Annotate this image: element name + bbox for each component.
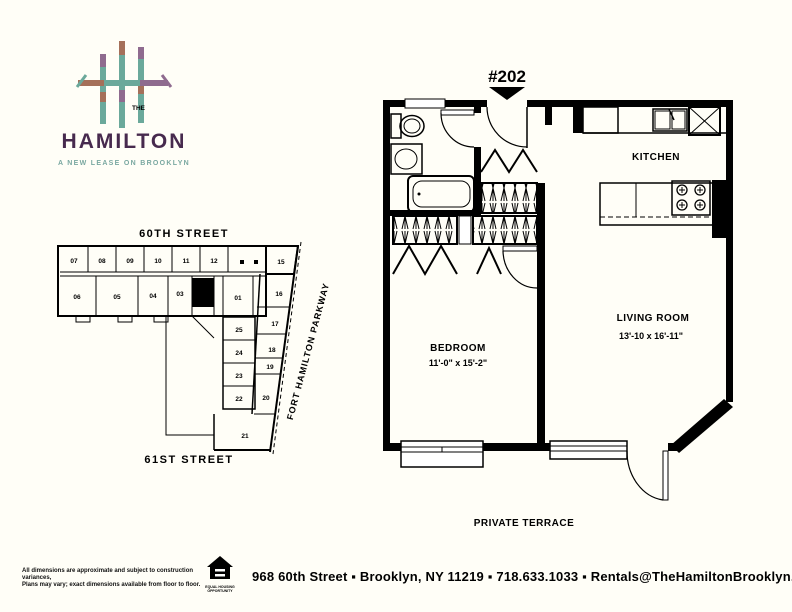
logo-the-text: THE (132, 105, 146, 112)
site-plan-unit-label-09: 09 (126, 258, 134, 265)
site-plan-unit-label-20: 20 (262, 395, 270, 402)
logo-title: HAMILTON (56, 130, 192, 154)
equal-housing-house-icon (207, 556, 233, 580)
bedroom-closet-left-bifold-door (393, 246, 457, 274)
street-label-fort-hamilton-parkway: FORT HAMILTON PARKWAY (285, 282, 331, 421)
kitchen-sink-icon (653, 109, 687, 131)
equal-housing-logo: EQUAL HOUSING OPPORTUNITY (203, 556, 237, 593)
site-plan-unit-label-07: 07 (70, 258, 78, 265)
bedroom-door (503, 251, 537, 288)
site-plan-unit-label-03: 03 (176, 291, 184, 298)
bedroom-closet-left (393, 216, 457, 244)
logo-tagline: A NEW LEASE ON BROOKLYN (56, 160, 192, 167)
unit-callout-label: #202 (488, 67, 526, 86)
site-plan-unit-label-05: 05 (113, 294, 121, 301)
footer-address: 968 60th Street ▪ Brooklyn, NY 11219 ▪ 7… (252, 569, 792, 584)
site-plan-unit-label-11: 11 (183, 258, 190, 265)
bathroom (391, 110, 474, 212)
bedroom: BEDROOM 11'-0" x 15'-2" (401, 246, 537, 467)
site-plan-unit-label-08: 08 (98, 258, 106, 265)
site-plan-unit-label-01: 01 (234, 295, 242, 302)
entry (487, 107, 527, 148)
site-plan-unit-label-04: 04 (149, 293, 157, 300)
kitchen-label: KITCHEN (632, 152, 680, 163)
disclaimer-line-1: All dimensions are approximate and subje… (22, 568, 212, 582)
hamilton-logo: THE HAMILTON A NEW LEASE ON BROOKLYN (56, 32, 192, 167)
bedroom-dimensions: 11'-0" x 15'-2" (429, 358, 487, 368)
disclaimer-line-2: Plans may vary; exact dimensions availab… (22, 582, 212, 589)
walls (383, 99, 733, 453)
refrigerator-icon (689, 107, 720, 135)
living-room-label: LIVING ROOM (617, 313, 690, 324)
bathroom-door (441, 113, 474, 147)
site-plan-unit-label-23: 23 (235, 373, 243, 380)
private-terrace-label: PRIVATE TERRACE (474, 518, 574, 529)
kitchen: KITCHEN (583, 107, 726, 225)
floor-plan-202: #202 (378, 62, 738, 532)
living-room-dimensions: 13'-10 x 16'-11" (619, 331, 683, 341)
site-plan-unit-label-10: 10 (154, 258, 162, 265)
site-plan-unit-label-16: 16 (275, 291, 283, 298)
living-room: LIVING ROOM 13'-10 x 16'-11" (550, 313, 689, 500)
site-key-plan: 60TH STREET 61ST STREET FORT HAMILTON PA… (48, 222, 338, 472)
kitchen-counter (600, 183, 713, 225)
bedroom-label: BEDROOM (430, 343, 486, 354)
terrace-door (627, 451, 668, 500)
site-plan-unit-02-highlighted (192, 278, 214, 307)
site-plan-unit-label-21: 21 (241, 433, 249, 440)
unit-callout: #202 (488, 67, 526, 100)
living-room-window (550, 441, 627, 459)
bedroom-closet-right-bifold-door (477, 248, 501, 274)
bedroom-window (401, 441, 483, 467)
hamilton-logo-mark: THE (74, 32, 174, 128)
site-plan-unit-label-25: 25 (235, 327, 243, 334)
stove-icon (672, 181, 710, 215)
site-plan-unit-label-15: 15 (277, 259, 285, 266)
site-plan-unit-label-24: 24 (235, 350, 243, 357)
site-plan-unit-label-19: 19 (266, 364, 274, 371)
site-plan-unit-label-12: 12 (210, 258, 218, 265)
site-plan-unit-label-06: 06 (73, 294, 81, 301)
site-plan-unit-label-22: 22 (235, 396, 243, 403)
unit-callout-arrow-icon (489, 87, 525, 100)
entry-closet-bifold-door (481, 150, 537, 172)
site-plan-unit-label-17: 17 (271, 321, 279, 328)
street-label-60th: 60TH STREET (139, 228, 229, 240)
site-plan-building-outline (58, 242, 301, 454)
equal-housing-text-2: OPPORTUNITY (203, 589, 237, 593)
site-plan-unit-label-18: 18 (268, 347, 276, 354)
footer-disclaimer: All dimensions are approximate and subje… (22, 568, 212, 589)
entry-door (487, 107, 527, 147)
bedroom-closet-right (473, 216, 537, 244)
street-label-61st: 61ST STREET (144, 454, 233, 466)
entry-closet (481, 183, 537, 213)
